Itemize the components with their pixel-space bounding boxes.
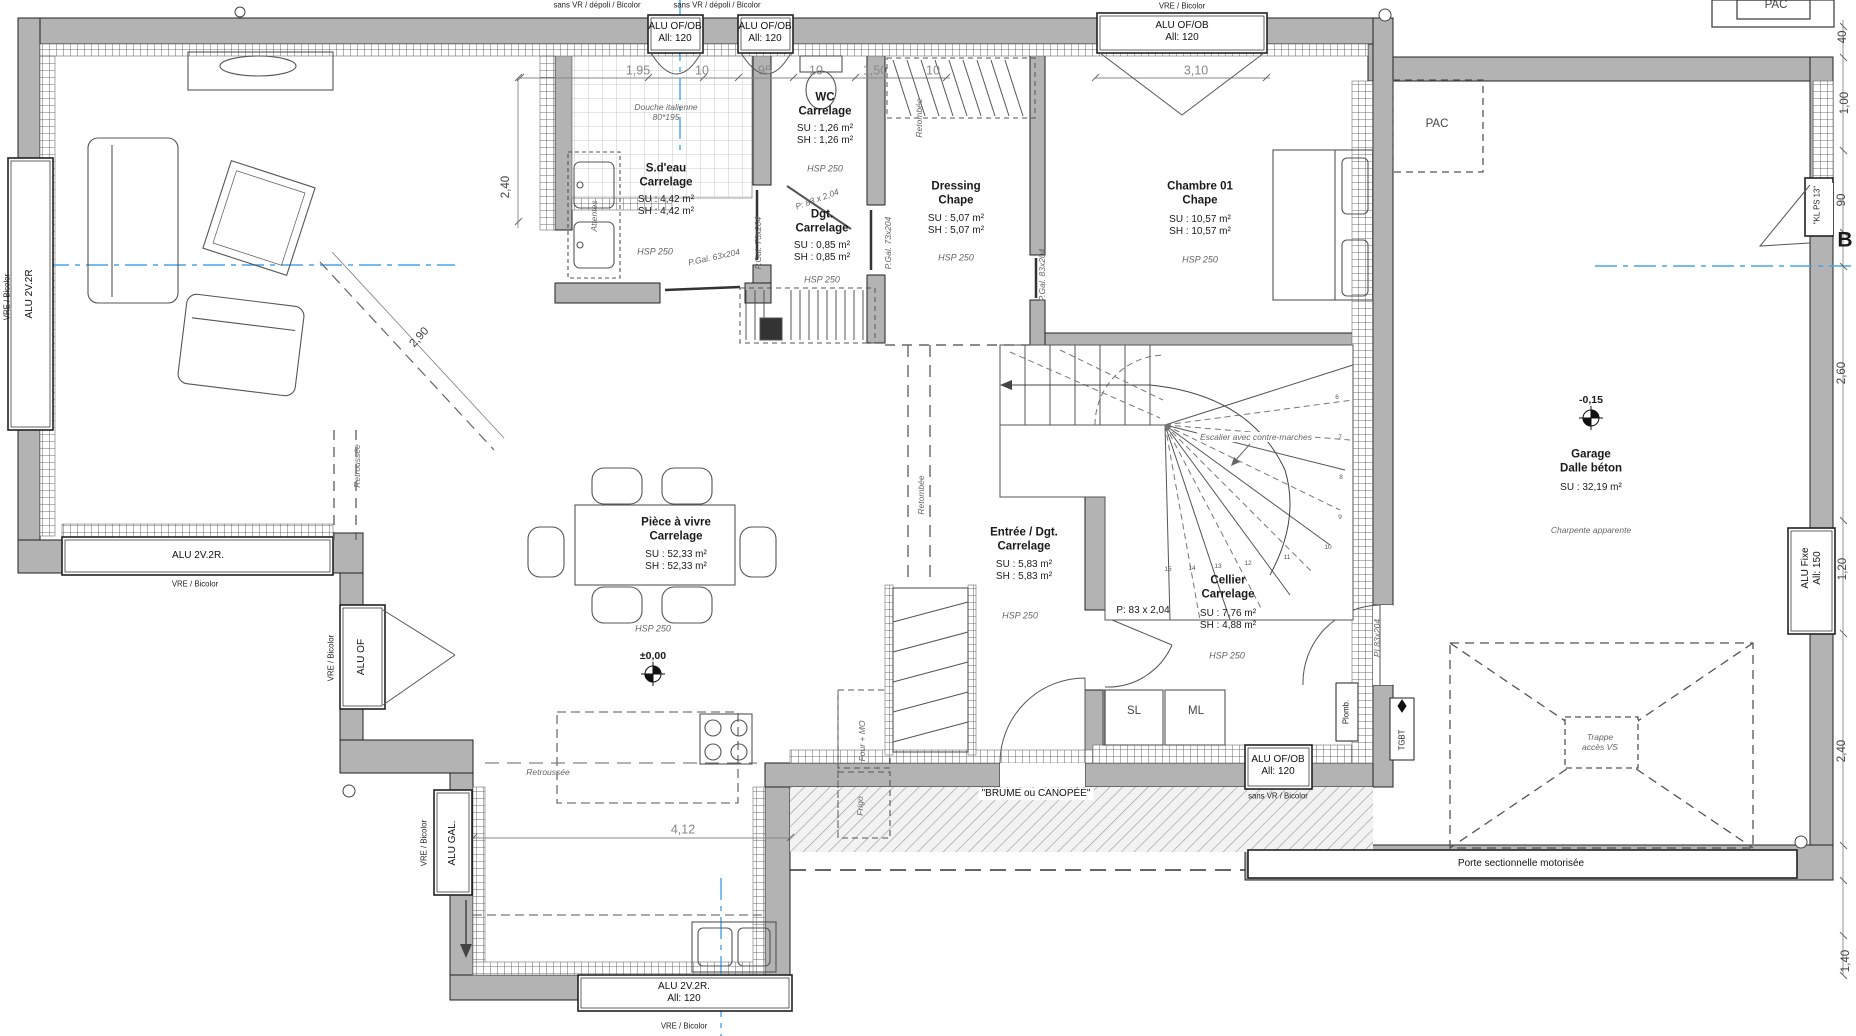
note-sans-vr-2: sans VR / dépoli / Bicolor [673, 0, 760, 9]
room-chambre-areas: SU : 10,57 m² SH : 10,57 m² [1169, 214, 1231, 238]
dim-10a: 10 [695, 64, 709, 79]
door-pgal73-1: P.Gal. 73x204 [753, 217, 763, 270]
window-label-left: ALU 2V.2R [24, 269, 36, 318]
room-sdeau-hsp: HSP 250 [637, 247, 673, 258]
room-dressing-name: Dressing Chape [931, 180, 980, 207]
room-dressing-hsp: HSP 250 [938, 253, 974, 264]
note-frigo: Frigo [855, 796, 865, 815]
window-label-top-1: ALU OF/OB All: 120 [648, 21, 701, 45]
step-12: 12 [1244, 560, 1251, 568]
dim-290: 2,90 [407, 325, 432, 351]
step-11: 11 [1284, 554, 1291, 562]
dim-100: 1,00 [1839, 92, 1853, 114]
section-b: B [1837, 229, 1852, 254]
floor-plan-canvas: sans VR / dépoli / Bicolorsans VR / dépo… [0, 0, 1856, 1036]
note-brume: "BRUME ou CANOPÉE" [979, 788, 1094, 800]
door-garage-label: Porte sectionnelle motorisée [1458, 858, 1584, 870]
dim-310: 3,10 [1184, 64, 1208, 79]
note-pac-outside: PAC [1765, 0, 1788, 13]
note-retroussee-h: Retroussée [526, 767, 569, 777]
dim-150: 1,50 [863, 64, 887, 79]
note-attentes: Attentes [589, 200, 599, 231]
room-wc-areas: SU : 1,26 m² SH : 1,26 m² [797, 123, 853, 147]
dim-40: 40 [1837, 31, 1851, 44]
window-label-top-3: ALU OF/OB All: 120 [1155, 20, 1208, 44]
door-pgal83: P.Gal. 83x204 [1037, 249, 1047, 302]
dim-10c: 10 [926, 64, 940, 79]
note-vre-lb: VRE / Bicolor [172, 579, 218, 588]
note-sans-vr-cellier: sans VR / Bicolor [1248, 791, 1308, 800]
step-14: 14 [1188, 565, 1195, 573]
note-vre-top: VRE / Bicolor [1159, 1, 1205, 10]
step-9: 9 [1338, 514, 1342, 522]
room-dgt-hsp: HSP 250 [804, 275, 840, 286]
note-retombee-2: Retombée [916, 475, 926, 514]
step-8: 8 [1339, 474, 1343, 482]
room-entree-areas: SU : 5,83 m² SH : 5,83 m² [996, 559, 1052, 583]
window-label-kitchen: ALU 2V.2R. All: 120 [658, 981, 710, 1005]
step-10: 10 [1324, 544, 1331, 552]
window-label-top-2: ALU OF/OB All: 120 [738, 21, 791, 45]
door-klps: "KL PS 13" [1812, 186, 1821, 224]
step-13: 13 [1214, 563, 1221, 571]
note-four-mo: Four + MO [857, 721, 867, 762]
room-wc-hsp: HSP 250 [807, 164, 843, 175]
appliance-sl: SL [1127, 705, 1141, 719]
note-vre-kitchen: VRE / Bicolor [661, 1021, 707, 1030]
note-plomb: Plomb. [1341, 700, 1350, 724]
room-wc-name: WC Carrelage [798, 91, 851, 118]
note-vre-alugal: VRE / Bicolor [419, 820, 428, 866]
level-minus15: -0,15 [1579, 394, 1603, 406]
note-tgbt: TGBT [1397, 730, 1406, 751]
room-cellier-areas: SU : 7,76 m² SH : 4,88 m² [1200, 608, 1256, 632]
dim-95: 95 [758, 64, 772, 79]
dim-10b: 10 [809, 64, 823, 79]
dim-140: 1,40 [1840, 950, 1854, 972]
room-dgt-areas: SU : 0,85 m² SH : 0,85 m² [794, 240, 850, 264]
note-douche: Douche italienne 80*195 [634, 102, 697, 122]
room-piece-name: Pièce à vivre Carrelage [641, 516, 711, 543]
dim-90: 90 [1836, 194, 1850, 207]
dim-240-garage: 2,40 [1836, 740, 1850, 762]
dim-260: 2,60 [1836, 362, 1850, 384]
dim-195: 1,95 [626, 64, 650, 79]
note-sans-vr-1: sans VR / dépoli / Bicolor [553, 0, 640, 9]
step-6: 6 [1335, 394, 1339, 402]
note-charpente: Charpente apparente [1551, 525, 1631, 535]
note-trappe: Trappe accès VS [1579, 732, 1621, 752]
appliance-ml: ML [1188, 705, 1204, 719]
room-piece-areas: SU : 52,33 m² SH : 52,33 m² [645, 549, 707, 573]
door-pgal63: P.Gal. 63x204 [687, 247, 741, 268]
room-sdeau-name: S.d'eau Carrelage [639, 162, 692, 189]
dim-412: 4,12 [671, 823, 695, 838]
room-chambre-hsp: HSP 250 [1182, 255, 1218, 266]
labels-layer: sans VR / dépoli / Bicolorsans VR / dépo… [0, 0, 1856, 1036]
room-entree-name: Entrée / Dgt. Carrelage [990, 526, 1058, 553]
note-retroussee-v: Retroussée [352, 444, 362, 487]
step-15: 15 [1164, 566, 1171, 574]
note-vre-aluof: VRE / Bicolor [326, 635, 335, 681]
step-7: 7 [1338, 434, 1342, 442]
level-zero: ±0,00 [640, 650, 666, 662]
note-escalier: Escalier avec contre-marches [1197, 432, 1315, 442]
room-garage-name: Garage Dalle béton [1560, 448, 1622, 475]
window-label-aluof: ALU OF [356, 639, 368, 675]
window-label-alugal: ALU GAL. [447, 820, 459, 865]
note-retombee-1: Retombée [914, 98, 924, 137]
room-dgt-name: Dgt. Carrelage [795, 208, 848, 235]
window-label-cellier: ALU OF/OB All: 120 [1251, 754, 1304, 778]
note-vre-left: VRE / Bicolor [2, 274, 11, 320]
dim-240-sdeau: 2,40 [500, 176, 514, 198]
room-dressing-areas: SU : 5,07 m² SH : 5,07 m² [928, 213, 984, 237]
dim-120: 1,20 [1837, 558, 1851, 580]
window-label-lb: ALU 2V.2R. [172, 550, 224, 562]
door-pi83: PI 83x204 [1372, 619, 1382, 657]
room-cellier-name: Cellier Carrelage [1201, 574, 1254, 601]
room-entree-hsp: HSP 250 [1002, 611, 1038, 622]
room-cellier-hsp: HSP 250 [1209, 651, 1245, 662]
note-pac-inside: PAC [1426, 118, 1449, 132]
room-garage-areas: SU : 32,19 m² [1560, 482, 1622, 494]
room-sdeau-areas: SU : 4,42 m² SH : 4,42 m² [638, 194, 694, 218]
room-piece-hsp: HSP 250 [635, 624, 671, 635]
room-chambre-name: Chambre 01 Chape [1167, 180, 1233, 207]
window-label-alufixe: ALU Fixe All: 150 [1800, 547, 1824, 588]
door-cellier-size: P: 83 x 2,04 [1116, 605, 1169, 617]
door-pgal73-2: P.Gal. 73x204 [883, 217, 893, 270]
